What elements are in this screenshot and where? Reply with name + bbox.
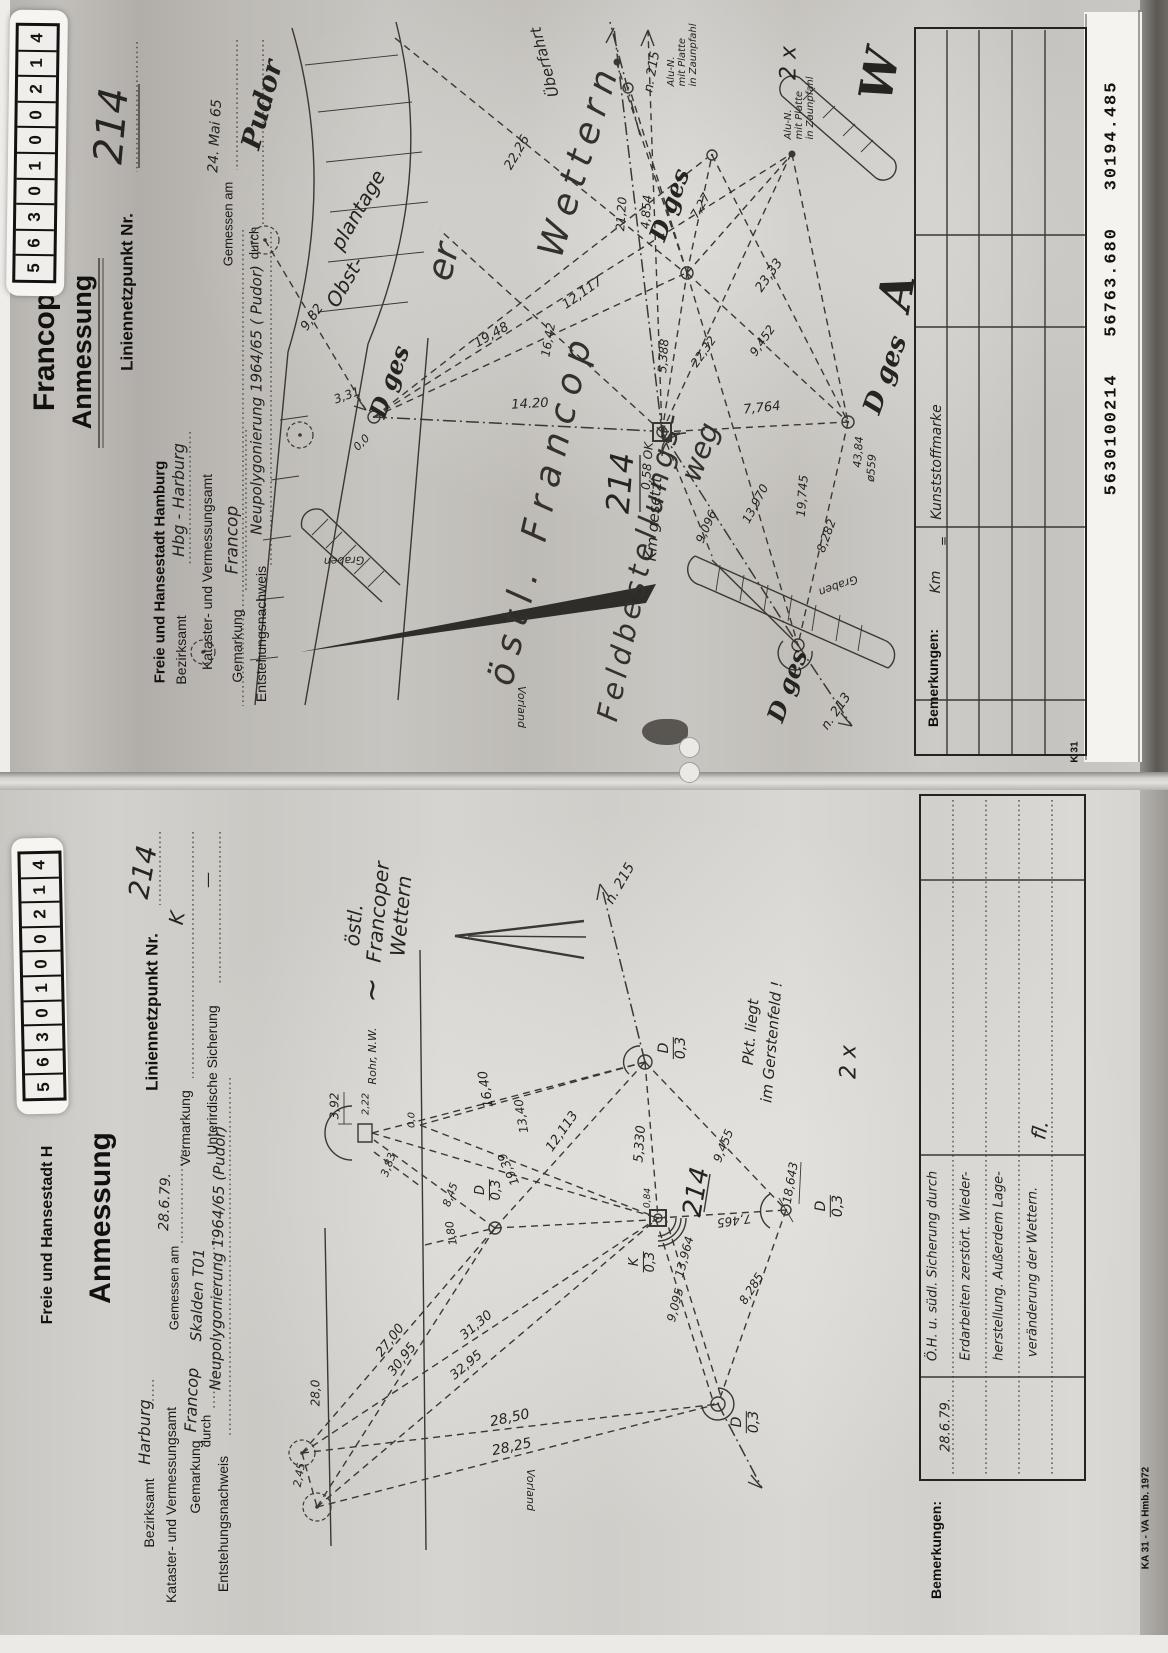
survey-point-center: [785, 1209, 787, 1211]
barcode-digit: 5: [34, 1082, 54, 1092]
barcode-digit: 0: [26, 110, 46, 120]
sketch-line: [280, 416, 308, 420]
sheet1-table-eq: =: [937, 536, 950, 546]
sketch-line: [374, 274, 684, 417]
sheet1-pt214-label: 214: [600, 451, 641, 515]
sketch-path: [358, 1124, 372, 1142]
sketch-line: [271, 476, 299, 480]
sheet1-lnp-value: 214: [86, 86, 137, 166]
sheet2-note-line-3: herstellung. Außerdem Lage-: [993, 1171, 1008, 1361]
sketch-line: [305, 55, 398, 65]
sheet1-lnp-label: Liniennetzpunkt Nr.: [117, 213, 136, 371]
sketch-line: [495, 1220, 650, 1228]
sketch-line: [792, 154, 848, 422]
sheet1-barcode-sticker: 4120010365: [6, 10, 68, 297]
sheet1-bezirksamt-label: Bezirksamt: [174, 615, 190, 684]
sheet1-gemarkung-label: Gemarkung: [230, 609, 246, 682]
sheet2-frac-d03-3: D0,3: [814, 1195, 846, 1217]
sheet2-durch-value: Skalden T01: [188, 1248, 208, 1341]
sheet1-m-14-20: 14.20: [511, 397, 549, 413]
survey-point-center: [657, 1217, 659, 1219]
survey-sketch-overlay: [0, 0, 1168, 1653]
sheet2-lnp-label: Liniennetzpunkt Nr.: [142, 933, 161, 1091]
sketch-path: [688, 556, 700, 585]
sketch-path: [288, 28, 314, 352]
sketch-line: [420, 950, 426, 1550]
sheet1-note-alu-2: Alu-N. mit Platte in Zaunpfahl: [783, 76, 817, 139]
sheet2-form-title: Anmessung: [84, 1132, 118, 1304]
sheet2-frac-k03: K0,3: [628, 1252, 658, 1273]
barcode-digit-cell: 6: [16, 230, 54, 256]
barcode-digit: 2: [27, 84, 47, 94]
sheet2-note-sig: fl.: [1027, 1119, 1052, 1142]
sheet2-note-date: 28.6.79.: [940, 1398, 955, 1452]
sheet2-rohr-note: Rohr, N.W.: [367, 1027, 379, 1084]
barcode-digit-cell: 1: [23, 977, 62, 1002]
barcode-digit-cell: 0: [23, 952, 62, 977]
sketch-line: [368, 571, 384, 587]
sketch-line: [716, 565, 720, 591]
sketch-line: [861, 140, 873, 152]
sketch-line: [606, 28, 614, 43]
sketch-line: [312, 519, 328, 535]
sheet1-kva-label: Kataster- und Vermessungsamt: [200, 474, 216, 670]
barcode-digit: 3: [33, 1032, 53, 1042]
sheet1-gemarkung-title: Francop: [28, 293, 62, 411]
barcode-digit: 1: [30, 885, 50, 895]
sheet2-note-line-4: veränderung der Wettern.: [1027, 1187, 1042, 1357]
sheet1-script-w: W: [850, 45, 910, 105]
sheet2-frac-d03-1: D0,3: [474, 1180, 504, 1201]
sheet1-m-21-20: 21,20: [614, 196, 630, 231]
sketch-path: [876, 160, 896, 180]
barcode-digit: 4: [30, 860, 50, 870]
north-arrow: [300, 584, 656, 652]
sheet1-m-o559: ø559: [865, 454, 879, 483]
sketch-line: [712, 155, 848, 422]
sheet1-entstehung-label: Entstehungsnachweis: [254, 566, 270, 702]
sheet1-form-title: Anmessung: [67, 275, 97, 430]
barcode-digit-strip: 4120010365: [12, 23, 60, 284]
sketch-line: [455, 921, 584, 936]
sheet2-note-line-2: Erdarbeiten zerstört. Wieder-: [960, 1171, 975, 1360]
sheet1-graben-1: Graben: [324, 553, 365, 567]
tree-center-dot: [263, 238, 267, 242]
sheet2-form-code: KA 31 - VA Hmb. 1972: [1140, 1467, 1151, 1569]
sketch-line: [326, 532, 342, 548]
sheet1-agency: Freie und Hansestadt Hamburg: [153, 461, 170, 684]
sheet2-frac-d03-4: D0,3: [730, 1411, 762, 1433]
survey-point-center: [494, 1227, 496, 1229]
barcode-digit-strip: 4120010365: [17, 851, 66, 1102]
barcode-digit: 0: [33, 1008, 53, 1018]
sketch-line: [843, 124, 855, 136]
sketch-line: [823, 106, 835, 118]
sketch-line: [322, 510, 400, 585]
sheet1-coords-strip: 5630100214 56763.680 30194.485: [1102, 81, 1121, 496]
sheet2-agency: Freie und Hansestadt H: [39, 1146, 57, 1325]
sheet2-mark-2x: 2 x: [838, 1045, 863, 1079]
barcode-digit-cell: 3: [24, 1026, 63, 1051]
survey-point-center: [711, 154, 713, 156]
sketch-path: [301, 509, 322, 528]
barcode-digit-cell: 1: [18, 51, 56, 77]
survey-point-center: [686, 272, 688, 274]
sheet2-m-0-84: 0,84: [643, 1188, 654, 1208]
barcode-digit-cell: 0: [16, 179, 54, 205]
barcode-digit-cell: 1: [17, 154, 55, 180]
sketch-line: [420, 1125, 658, 1218]
barcode-digit: 1: [26, 161, 46, 171]
sheet1-m-4-854: 4,854: [639, 194, 655, 229]
barcode-digit: 0: [26, 135, 46, 145]
sketch-line: [597, 884, 600, 900]
sheet1-note-alu-1: Alu-N. mit Platte in Zaunpfahl: [666, 23, 700, 86]
barcode-digit-cell: 6: [25, 1050, 64, 1075]
barcode-digit: 4: [28, 33, 48, 43]
sheet1-mark-2x: 2 x: [778, 46, 803, 80]
sketch-line: [712, 560, 798, 645]
sheet1-gemarkung-value: Francop: [223, 506, 242, 575]
sheet1-table-km: Km: [929, 571, 945, 594]
sheet1-entstehung-value: Neupolygonierung 1964/65 ( Pudor): [249, 265, 266, 535]
sheet2-bezirksamt-value: Harburg: [136, 1399, 154, 1464]
sheet2-tilde: ~: [356, 977, 390, 1002]
sheet2-m-28-0: 28,0: [309, 1380, 322, 1407]
sketch-line: [695, 556, 884, 640]
sheet2-bemerkungen-label: Bemerkungen:: [929, 1501, 945, 1599]
sheet1-bezirksamt-value: Hbg - Harburg: [170, 443, 188, 557]
sketch-line: [455, 936, 584, 958]
sketch-line: [326, 152, 422, 162]
sheet2-sicherung-value: —: [199, 872, 217, 888]
sheet2-note-line-1: Ö.H. u. südl. Sicherung durch: [927, 1171, 942, 1361]
sheet2-vorland: Vorland: [524, 1469, 536, 1511]
sheet2-m-3-92: 3,92: [328, 1093, 341, 1120]
survey-point-center: [797, 644, 799, 646]
sketch-line: [420, 1062, 645, 1125]
sheet2-m-2-22: 2,22: [360, 1093, 371, 1115]
sheet2-bezirksamt-label: Bezirksamt: [142, 1478, 158, 1547]
sheet1-m-5-388: 5,388: [656, 338, 672, 373]
sketch-line: [398, 338, 428, 700]
barcode-digit: 5: [24, 263, 44, 273]
barcode-digit-cell: 2: [18, 77, 56, 103]
sheet2-gemessen-value: 28.6.79.: [157, 1173, 175, 1231]
sheet1-m-43-84: 43,84: [852, 436, 866, 468]
barcode-digit-cell: 0: [17, 128, 55, 154]
barcode-digit-cell: 0: [17, 103, 55, 129]
barcode-digit: 6: [25, 238, 45, 248]
barcode-digit: 0: [31, 934, 51, 944]
barcode-digit: 6: [34, 1057, 54, 1067]
sketch-line: [603, 892, 645, 1062]
sheet2-durch-label: durch: [200, 1415, 215, 1448]
sketch-line: [374, 417, 653, 431]
tree-center-dot: [315, 1505, 319, 1509]
barcode-digit: 0: [32, 959, 52, 969]
tree-center-dot: [300, 1451, 304, 1455]
sheet2-m-5-330: 5,330: [632, 1125, 649, 1163]
barcode-digit-cell: 5: [25, 1075, 63, 1098]
sketch-path: [624, 1046, 640, 1074]
sheet2-gemessen-label: Gemessen am: [168, 1246, 183, 1331]
survey-point-dot: [789, 151, 796, 158]
sketch-line: [495, 1062, 645, 1228]
punch-hole: [679, 737, 700, 758]
barcode-digit-cell: 4: [20, 854, 59, 879]
barcode-digit-cell: 3: [16, 205, 54, 231]
sheet2-m-0-0: 0,0: [406, 1112, 417, 1128]
sketch-line: [263, 536, 291, 540]
barcode-digit-cell: 0: [22, 927, 61, 952]
barcode-digit: 0: [25, 186, 45, 196]
barcode-digit-cell: 4: [18, 26, 56, 52]
scanned-survey-document: FrancopAnmessungLiniennetzpunkt Nr.214Fr…: [0, 0, 1168, 1653]
sheet1-durch-label: durch: [248, 227, 263, 260]
sheet1-vorland: Vorland: [515, 686, 527, 728]
sketch-line: [718, 1210, 786, 1404]
tree-center-dot: [298, 433, 302, 437]
sketch-path: [884, 640, 895, 668]
survey-point-center: [847, 421, 849, 423]
barcode-digit-cell: 0: [24, 1001, 63, 1026]
barcode-digit-cell: 5: [15, 256, 53, 280]
sketch-line: [318, 102, 412, 112]
sheet1-form-code: K 31: [1069, 741, 1080, 762]
sheet2-kva-label: Kataster- und Vermessungsamt: [164, 1407, 180, 1603]
sketch-line: [468, 936, 586, 937]
barcode-digit-cell: 1: [21, 878, 60, 903]
barcode-digit: 1: [32, 983, 52, 993]
sheet1-gemessen-label: Gemessen am: [222, 182, 237, 267]
punch-hole: [679, 762, 700, 783]
sketch-line: [641, 30, 648, 46]
sketch-line: [317, 1218, 658, 1507]
sheet2-entstehung-label: Entstehungsnachweis: [216, 1456, 232, 1592]
sheet2-vermarkung-label: Vermarkung: [178, 1090, 194, 1165]
barcode-digit: 3: [25, 212, 45, 222]
barcode-digit-cell: 2: [21, 903, 60, 928]
barcode-digit: 2: [31, 910, 51, 920]
survey-point-center: [627, 87, 629, 89]
sheet2-frac-d03-2: D0,3: [657, 1037, 689, 1059]
sheet2-gemarkung-label: Gemarkung: [188, 1440, 204, 1513]
sheet2-barcode-sticker: 4120010365: [11, 837, 69, 1114]
sheet1-bemerkungen-label: Bemerkungen:: [926, 629, 942, 727]
survey-point-center: [644, 1061, 646, 1063]
survey-point-center: [717, 1403, 719, 1405]
sheet1-table-kunststoffmarke: Kunststoffmarke: [930, 404, 946, 519]
barcode-digit: 1: [27, 59, 47, 69]
